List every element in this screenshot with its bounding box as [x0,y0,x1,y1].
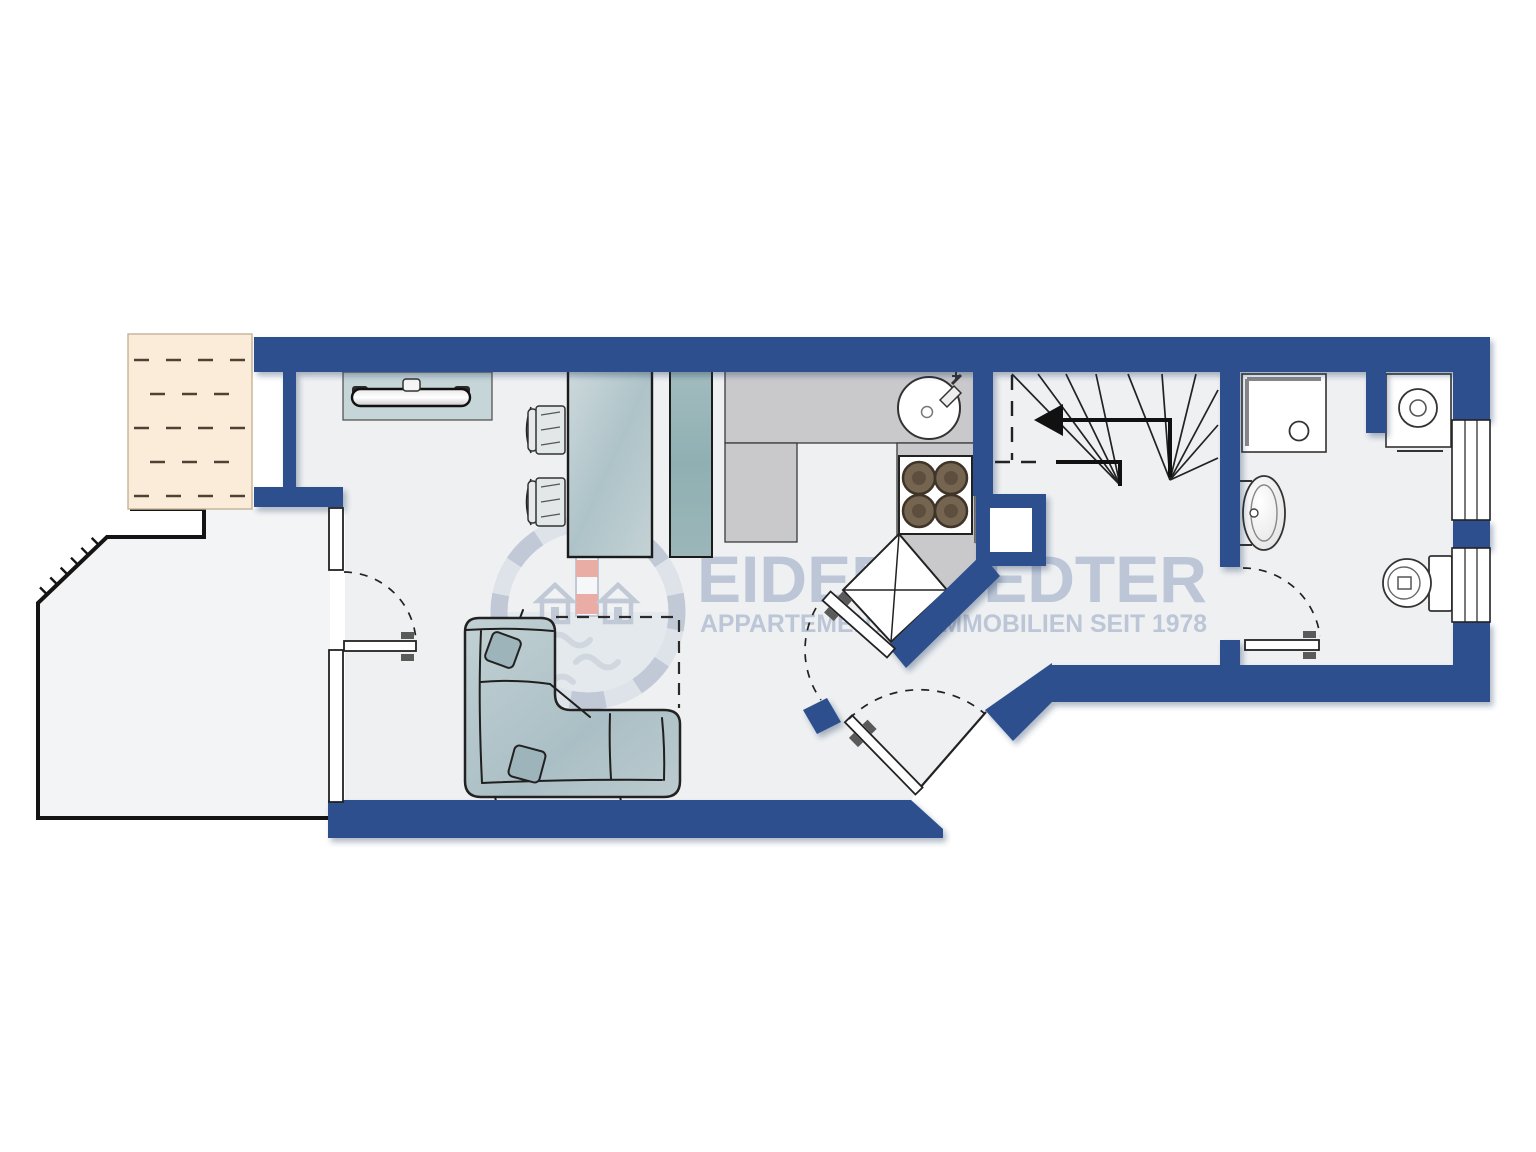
kitchen-sink [898,377,960,439]
window [1452,548,1490,622]
sofa-cushion [507,744,546,783]
wall-kitchen-right [973,372,993,496]
shower-drain-icon [1290,422,1309,441]
wall-shower-stub [1366,368,1386,433]
dining-chair [527,406,566,454]
door-leaf [1245,640,1319,650]
dining-table [568,370,652,557]
room-divider [670,368,712,557]
terrace-decking [128,334,252,509]
door-leaf [329,508,343,570]
wall-west [283,372,296,489]
door-handle-icon [401,632,414,639]
terrace [38,509,330,818]
tv-sideboard [343,372,492,420]
dining-chair [527,478,566,526]
terrace-floor [38,509,330,818]
wall-bottom-bath [1050,665,1490,702]
floor-plan-page: EIDERSTEDTER APPARTEMENTS & IMMOBILIEN S… [0,0,1536,1152]
door-handle-icon [1303,631,1316,638]
shaft-niche-inner [990,508,1032,552]
wall-top [254,337,1490,372]
window [1452,420,1490,520]
door-leaf [344,641,416,651]
faucet-icon [1250,509,1258,517]
shower [1242,374,1326,452]
window-front [329,650,343,802]
wall-right [1453,372,1490,420]
door-handle-icon [401,654,414,661]
floor-plan-canvas: EIDERSTEDTER APPARTEMENTS & IMMOBILIEN S… [0,0,1536,1152]
wall-bathroom-door-stub [1220,640,1240,667]
wall-right [1453,520,1490,548]
stove [899,456,972,534]
wall-west-stub [254,487,343,507]
kitchen-counter [725,443,797,542]
flush-button-icon [1398,577,1411,589]
wall-bottom-living [328,800,943,838]
toilet [1383,556,1452,611]
door-handle-icon [1303,652,1316,659]
washing-machine [1386,374,1451,451]
tv-mount-icon [403,379,420,391]
wall-bathroom-left [1220,372,1240,567]
